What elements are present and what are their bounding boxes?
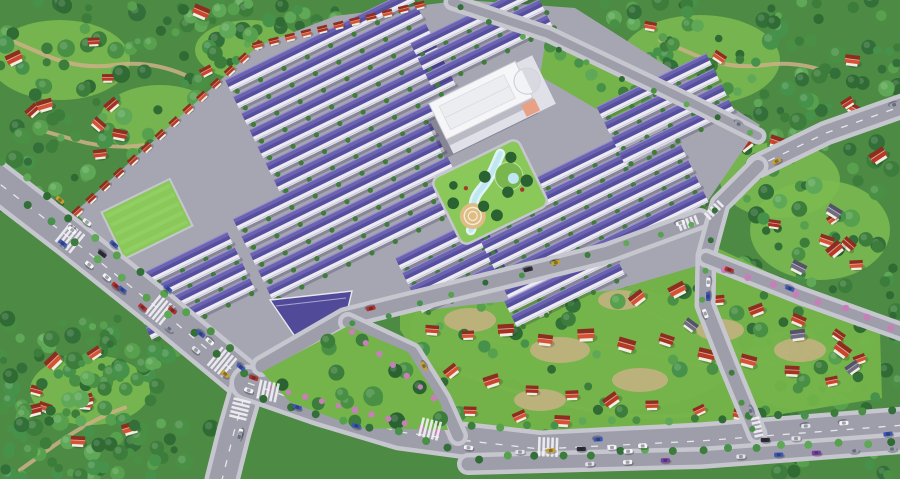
- tree: [830, 68, 841, 79]
- roadside-tree: [448, 292, 454, 298]
- tree-highlight: [773, 466, 781, 474]
- tree-highlight: [210, 34, 217, 41]
- roadside-tree: [458, 4, 464, 10]
- tree-highlight: [190, 92, 198, 100]
- tree: [759, 89, 769, 99]
- car-glass: [794, 437, 798, 440]
- tree-highlight: [792, 115, 800, 123]
- car-glass: [518, 450, 522, 453]
- tree-highlight: [99, 402, 106, 409]
- tree: [156, 26, 166, 36]
- tree-highlight: [845, 212, 853, 220]
- roadside-tree: [753, 444, 761, 452]
- roadside-tree: [585, 252, 591, 258]
- blossom-shrub: [363, 340, 369, 346]
- tree-highlight: [797, 74, 803, 80]
- roadside-tree: [858, 407, 866, 415]
- tree-highlight: [110, 44, 118, 52]
- tree: [89, 323, 96, 330]
- blossom-shrub: [319, 398, 325, 404]
- render-canvas: [0, 0, 900, 479]
- tree-highlight: [794, 249, 800, 255]
- roadside-tree: [444, 444, 452, 452]
- tree: [263, 13, 274, 24]
- tree-highlight: [871, 186, 879, 194]
- tree-highlight: [119, 415, 126, 422]
- tree-highlight: [808, 179, 816, 187]
- roadside-tree: [864, 440, 872, 448]
- tree: [54, 369, 64, 379]
- roadside-tree: [777, 441, 785, 449]
- tree-highlight: [277, 1, 283, 7]
- tree: [65, 114, 73, 122]
- tree-highlight: [871, 136, 878, 143]
- tree: [92, 98, 100, 106]
- roadside-tree: [482, 280, 488, 286]
- tree-highlight: [322, 336, 329, 343]
- roadside-tree: [339, 417, 347, 425]
- tree-highlight: [848, 76, 854, 82]
- tree-highlight: [731, 307, 738, 314]
- tree: [172, 28, 180, 36]
- tree-highlight: [88, 461, 95, 468]
- tree: [371, 394, 383, 406]
- tree: [864, 460, 874, 470]
- car-glass: [626, 450, 630, 453]
- roadside-tree: [523, 421, 531, 429]
- tree-highlight: [178, 456, 186, 464]
- tree: [885, 47, 894, 56]
- tree: [71, 131, 82, 142]
- roadside-tree: [703, 268, 709, 274]
- tree: [659, 33, 668, 42]
- tree-highlight: [175, 421, 183, 429]
- tree: [47, 113, 60, 126]
- tree: [0, 357, 7, 364]
- blossom-tree: [792, 291, 799, 298]
- tree: [71, 174, 79, 182]
- tree: [75, 415, 86, 426]
- roadside-tree: [804, 441, 812, 449]
- tree-highlight: [755, 324, 762, 331]
- tree-highlight: [16, 419, 23, 426]
- blossom-shrub: [402, 420, 408, 426]
- roadside-tree: [468, 422, 476, 430]
- tree-highlight: [674, 364, 681, 371]
- tree-highlight: [2, 313, 9, 320]
- tree: [33, 142, 44, 153]
- tree-highlight: [152, 443, 159, 450]
- roadside-tree: [164, 311, 172, 319]
- tree: [40, 437, 52, 449]
- car-glass: [804, 424, 808, 427]
- tree-highlight: [74, 393, 82, 401]
- tree-highlight: [54, 415, 62, 423]
- tree: [36, 378, 47, 389]
- blossom-tree: [887, 325, 894, 332]
- roadside-tree: [48, 217, 56, 225]
- tree-highlight: [890, 305, 897, 312]
- roadside-tree: [213, 350, 221, 358]
- tree: [754, 99, 763, 108]
- tree-highlight: [45, 333, 52, 340]
- roadside-tree: [64, 214, 72, 222]
- car-glass: [549, 449, 553, 453]
- tree-highlight: [39, 81, 46, 88]
- roadside-tree: [475, 456, 483, 464]
- tree: [59, 60, 70, 71]
- roadside-tree: [417, 300, 423, 306]
- tree-highlight: [760, 186, 767, 193]
- tree-highlight: [794, 203, 801, 210]
- tree-highlight: [205, 422, 213, 430]
- tree: [163, 16, 172, 25]
- tree: [44, 416, 54, 426]
- tree: [100, 321, 108, 329]
- roadside-tree: [608, 416, 616, 424]
- tree: [593, 405, 603, 415]
- roadside-tree: [587, 452, 595, 460]
- tree-highlight: [5, 370, 12, 377]
- tree-highlight: [82, 166, 89, 173]
- roadside-tree: [835, 439, 843, 447]
- roadside-tree: [651, 88, 657, 94]
- car-glass: [610, 446, 614, 449]
- tree: [587, 69, 598, 80]
- roadside-tree: [665, 417, 673, 425]
- tree-highlight: [24, 445, 31, 452]
- roof-back-slope: [102, 74, 113, 78]
- tree: [69, 375, 81, 387]
- roadside-tree: [708, 237, 714, 243]
- tree: [775, 243, 783, 251]
- tree: [757, 212, 769, 224]
- tree: [668, 355, 678, 365]
- tree-highlight: [35, 122, 42, 129]
- roadside-tree: [137, 268, 145, 276]
- roadside-tree: [583, 59, 589, 65]
- roadside-tree: [530, 452, 538, 460]
- roadside-tree: [560, 452, 568, 460]
- roadside-tree: [24, 201, 32, 209]
- roadside-tree: [504, 452, 512, 460]
- tree: [49, 139, 59, 149]
- tree-highlight: [117, 110, 125, 118]
- tree-highlight: [28, 421, 36, 429]
- tree: [691, 20, 703, 32]
- tree-highlight: [880, 82, 887, 89]
- tree-highlight: [608, 12, 615, 19]
- tree-highlight: [147, 358, 153, 364]
- tree: [878, 65, 887, 74]
- tree-highlight: [112, 468, 119, 475]
- roadside-tree: [259, 395, 267, 403]
- roadside-tree: [519, 272, 525, 278]
- roadside-tree: [386, 313, 392, 319]
- blossom-tree: [770, 281, 777, 288]
- tree: [127, 1, 137, 11]
- dirt-patch: [612, 368, 668, 392]
- tree: [82, 13, 92, 23]
- tree: [795, 36, 804, 45]
- tree: [800, 221, 809, 230]
- roadside-tree: [749, 426, 755, 432]
- tree: [292, 4, 302, 14]
- tree: [57, 134, 64, 141]
- tree-highlight: [337, 389, 343, 395]
- roadside-tree: [143, 294, 151, 302]
- tree-highlight: [800, 94, 807, 101]
- tree: [873, 46, 882, 55]
- tree: [805, 34, 817, 46]
- tree: [164, 433, 176, 445]
- car-glass: [579, 447, 583, 450]
- tree-highlight: [840, 280, 847, 287]
- roadside-tree: [712, 208, 718, 214]
- tree-highlight: [12, 121, 19, 128]
- tree: [145, 395, 157, 407]
- tree: [43, 58, 51, 66]
- aerial-masterplan-render: [0, 0, 900, 479]
- tree-highlight: [861, 234, 868, 241]
- tree: [733, 87, 742, 96]
- roadside-tree: [724, 444, 732, 452]
- roadside-tree: [94, 255, 102, 263]
- tree-highlight: [668, 39, 674, 45]
- roadside-tree: [831, 409, 839, 417]
- tree-highlight: [886, 163, 893, 170]
- tree: [24, 158, 32, 166]
- car-glass: [852, 449, 856, 452]
- tree-highlight: [115, 364, 123, 372]
- tree: [80, 24, 91, 35]
- tree-highlight: [750, 208, 758, 216]
- blossom-tree: [864, 314, 871, 321]
- tree: [521, 339, 530, 348]
- tree: [829, 285, 837, 293]
- tree-highlight: [115, 67, 123, 75]
- blossom-tree: [842, 305, 849, 312]
- tree-highlight: [435, 413, 442, 420]
- roadside-tree: [623, 240, 629, 246]
- tree: [153, 105, 162, 114]
- tree-highlight: [139, 66, 145, 72]
- tree-highlight: [617, 406, 623, 412]
- roadside-tree: [699, 297, 705, 303]
- roadside-tree: [91, 234, 99, 242]
- tree-highlight: [331, 367, 338, 374]
- tree-highlight: [132, 374, 138, 380]
- roadside-tree: [688, 222, 694, 228]
- tree-highlight: [769, 17, 775, 23]
- roadside-tree: [700, 446, 708, 454]
- tree: [880, 276, 891, 287]
- tree: [780, 113, 790, 123]
- tree-highlight: [209, 48, 216, 55]
- tree: [751, 58, 760, 67]
- car-glass: [626, 461, 630, 464]
- tree-highlight: [814, 70, 821, 77]
- roadside-tree: [395, 427, 403, 435]
- tree: [872, 241, 884, 253]
- blossom-shrub: [418, 384, 423, 389]
- tree: [592, 350, 600, 358]
- tree: [793, 383, 804, 394]
- tree-highlight: [782, 82, 789, 89]
- tree-highlight: [62, 436, 69, 443]
- roadside-tree: [739, 400, 745, 406]
- tree: [888, 264, 897, 273]
- tree: [848, 2, 859, 13]
- tree: [156, 419, 166, 429]
- tree: [806, 277, 816, 287]
- tree: [653, 47, 662, 56]
- roadside-tree: [632, 416, 640, 424]
- roadside-tree: [312, 410, 320, 418]
- blossom-shrub: [390, 362, 396, 368]
- car-glass: [739, 455, 743, 458]
- tree: [800, 238, 810, 248]
- tree: [178, 4, 189, 15]
- tree: [62, 408, 70, 416]
- blossom-tree: [744, 274, 751, 281]
- tree-highlight: [612, 296, 619, 303]
- tree: [228, 3, 240, 15]
- roadside-tree: [718, 415, 726, 423]
- tree-highlight: [79, 318, 86, 325]
- tree-highlight: [93, 440, 100, 447]
- tree: [597, 83, 606, 92]
- blossom-shrub: [385, 416, 391, 422]
- tree: [58, 318, 67, 327]
- tree: [179, 51, 189, 61]
- roadside-tree: [887, 438, 895, 446]
- tree: [134, 456, 143, 465]
- car-glass: [588, 462, 592, 466]
- roadside-tree: [365, 424, 373, 432]
- tree-highlight: [194, 75, 202, 83]
- roadside-tree: [801, 412, 809, 420]
- tree-highlight: [881, 365, 888, 372]
- tree: [4, 442, 15, 453]
- dirt-patch: [444, 308, 496, 332]
- tree: [83, 426, 95, 438]
- tree: [181, 80, 189, 88]
- tree: [870, 392, 880, 402]
- tree: [886, 291, 894, 299]
- tree-highlight: [245, 29, 252, 36]
- blossom-shrub: [352, 407, 359, 414]
- tree: [805, 110, 815, 120]
- blossom-shrub: [376, 351, 382, 357]
- tree: [736, 55, 745, 64]
- tree-highlight: [105, 439, 111, 445]
- tree: [17, 363, 28, 374]
- tree-highlight: [67, 329, 74, 336]
- roadside-tree: [888, 406, 896, 414]
- tree: [876, 10, 887, 21]
- tree-highlight: [755, 108, 762, 115]
- tree: [707, 363, 719, 375]
- blossom-shrub: [336, 403, 341, 408]
- tree-highlight: [15, 130, 22, 137]
- roadside-tree: [729, 370, 735, 376]
- tree-highlight: [82, 373, 89, 380]
- tree-highlight: [121, 384, 127, 390]
- tree-highlight: [4, 395, 10, 401]
- roadside-tree: [556, 47, 562, 53]
- tree: [852, 175, 863, 186]
- tree: [275, 17, 285, 27]
- tree-highlight: [75, 470, 82, 477]
- tree: [47, 457, 57, 467]
- tree-highlight: [214, 5, 221, 12]
- tree-highlight: [831, 48, 839, 56]
- roof-front-slope: [102, 77, 113, 80]
- tree: [86, 336, 96, 346]
- tree-highlight: [137, 359, 144, 366]
- tree-highlight: [864, 42, 871, 49]
- tree-highlight: [629, 6, 636, 13]
- roadside-tree: [226, 344, 234, 352]
- car-glass: [842, 421, 846, 424]
- roof-ridge: [102, 77, 113, 78]
- blossom-shrub: [286, 390, 292, 396]
- tree: [779, 317, 789, 327]
- tree: [478, 340, 490, 352]
- tree-highlight: [683, 20, 689, 26]
- tree-highlight: [135, 38, 141, 44]
- tree-highlight: [845, 144, 851, 150]
- tree-highlight: [151, 381, 158, 388]
- tree: [748, 74, 757, 83]
- tree-highlight: [126, 43, 132, 49]
- tree: [847, 163, 859, 175]
- car-glass: [596, 438, 600, 441]
- car-glass: [707, 280, 710, 284]
- car-glass: [763, 438, 767, 441]
- tree-highlight: [563, 314, 570, 321]
- tree: [129, 420, 140, 431]
- car-glass: [706, 294, 709, 298]
- tree: [715, 35, 723, 43]
- roadside-tree: [520, 34, 526, 40]
- roadside-tree: [496, 424, 504, 432]
- tree: [814, 14, 824, 24]
- tree: [85, 4, 92, 11]
- roadside-tree: [691, 414, 699, 422]
- car-glass: [890, 447, 894, 450]
- car-glass: [466, 446, 470, 450]
- tree-highlight: [204, 42, 211, 49]
- roadside-tree: [422, 437, 430, 445]
- tree-highlight: [60, 42, 68, 50]
- roadside-tree: [349, 320, 355, 326]
- roadside-tree: [658, 232, 664, 238]
- roadside-tree: [240, 369, 248, 377]
- roadside-tree: [182, 308, 190, 316]
- tree: [15, 334, 24, 343]
- tree: [547, 365, 556, 374]
- tree-highlight: [99, 383, 105, 389]
- tree-highlight: [18, 410, 24, 416]
- tree-highlight: [221, 23, 229, 31]
- roadside-tree: [71, 238, 79, 246]
- tree-highlight: [775, 196, 782, 203]
- blossom-shrub: [302, 394, 308, 400]
- roadside-tree: [669, 447, 677, 455]
- tree-highlight: [145, 38, 151, 44]
